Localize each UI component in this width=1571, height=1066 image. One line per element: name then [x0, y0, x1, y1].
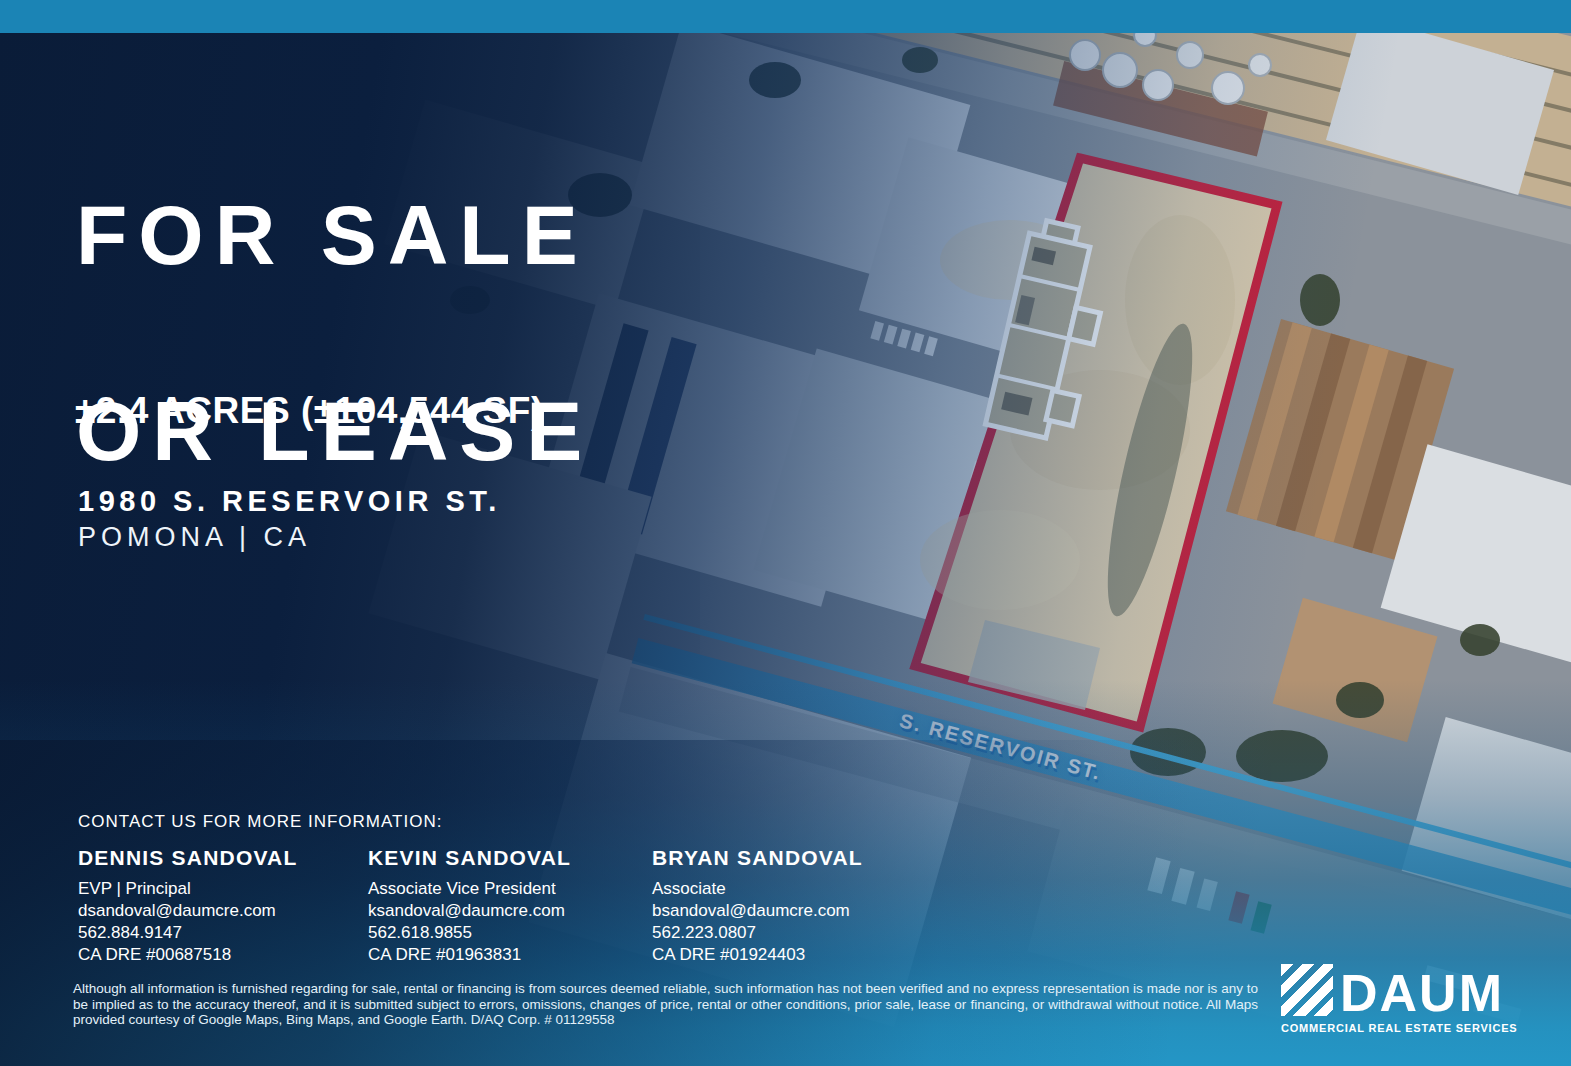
agent-license: CA DRE #00687518: [78, 944, 368, 966]
daum-logo-tagline: COMMERCIAL REAL ESTATE SERVICES: [1281, 1022, 1517, 1034]
top-accent-bar: [0, 0, 1571, 33]
contact-heading: CONTACT US FOR MORE INFORMATION:: [78, 812, 442, 832]
agent-list: DENNIS SANDOVAL EVP | Principal dsandova…: [78, 846, 942, 966]
agent-title: EVP | Principal: [78, 878, 368, 900]
legal-disclaimer: Although all information is furnished re…: [73, 981, 1258, 1028]
agent-email: bsandoval@daumcre.com: [652, 900, 942, 922]
daum-logo: DAUM COMMERCIAL REAL ESTATE SERVICES: [1281, 964, 1517, 1034]
daum-logo-top: DAUM: [1281, 964, 1517, 1016]
agent-card: KEVIN SANDOVAL Associate Vice President …: [368, 846, 652, 966]
agent-license: CA DRE #01924403: [652, 944, 942, 966]
title-line-1: FOR SALE: [76, 188, 589, 282]
daum-logo-wordmark: DAUM: [1340, 970, 1504, 1016]
agent-phone: 562.223.0807: [652, 922, 942, 944]
agent-email: ksandoval@daumcre.com: [368, 900, 652, 922]
agent-email: dsandoval@daumcre.com: [78, 900, 368, 922]
agent-card: DENNIS SANDOVAL EVP | Principal dsandova…: [78, 846, 368, 966]
daum-stripes-icon: [1281, 964, 1333, 1016]
agent-name: DENNIS SANDOVAL: [78, 846, 368, 870]
page-title: FOR SALE OR LEASE: [76, 186, 593, 480]
agent-title: Associate: [652, 878, 942, 900]
lot-size: ±2.4 ACRES (±104,544 SF): [75, 390, 544, 432]
agent-title: Associate Vice President: [368, 878, 652, 900]
agent-license: CA DRE #01963831: [368, 944, 652, 966]
property-address: 1980 S. RESERVOIR ST.: [78, 485, 501, 518]
flyer: S. RESERVOIR ST. FOR SALE OR LEASE ±2.4 …: [0, 0, 1571, 1066]
agent-name: KEVIN SANDOVAL: [368, 846, 652, 870]
property-city-state: POMONA | CA: [78, 522, 311, 553]
agent-card: BRYAN SANDOVAL Associate bsandoval@daumc…: [652, 846, 942, 966]
agent-name: BRYAN SANDOVAL: [652, 846, 942, 870]
agent-phone: 562.618.9855: [368, 922, 652, 944]
agent-phone: 562.884.9147: [78, 922, 368, 944]
